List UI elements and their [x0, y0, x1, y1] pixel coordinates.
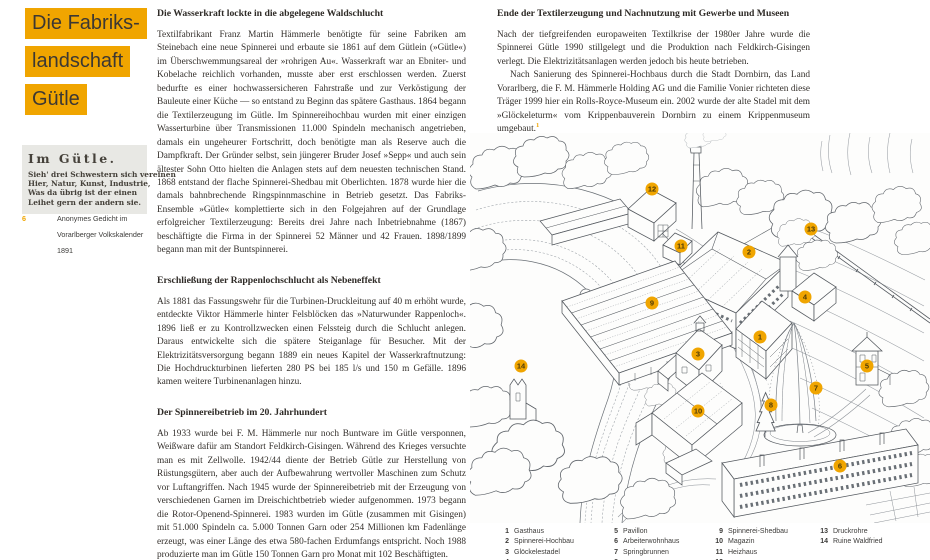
legend-item-number: 5 [606, 527, 618, 537]
poem-line: Was da übrig ist der einen [28, 188, 142, 197]
section-nachnutzung: Ende der Textilerzeugung und Nachnutzung… [497, 8, 810, 137]
legend-item: 6Arbeiterwohnhaus [606, 537, 679, 547]
legend-item-number: 10 [711, 537, 723, 547]
footnote-marker: 1 [536, 122, 539, 129]
section-spinnereibetrieb: Der Spinnereibetrieb im 20. Jahrhundert … [157, 407, 466, 560]
section-wasserkraft: Die Wasserkraft lockte in die abgelegene… [157, 8, 466, 258]
legend-item-label: Glöckelestadel [514, 549, 560, 556]
building-warehouse [540, 199, 632, 245]
page-title-line-3: Gütle [25, 84, 87, 115]
legend-item-label: Gasthaus [514, 528, 544, 535]
paragraph-text: Nach Sanierung des Spinnerei-Hochbaus du… [497, 70, 810, 134]
poem-title: Im Gütle. [28, 151, 142, 166]
map-marker-6: 6 [834, 460, 847, 473]
legend-item-number: 14 [816, 537, 828, 547]
poem-line: Sieh' drei Schwestern sich vereinen [28, 170, 142, 179]
building-pavillon [852, 332, 890, 385]
page-title-line-1: Die Fabriks- [25, 8, 147, 39]
poem-line: Hier, Natur, Kunst, Industrie, [28, 179, 142, 188]
legend-item: 13Druckrohre [816, 527, 883, 537]
map-marker-10: 10 [692, 405, 705, 418]
site-plan-illustration: 1213112491314578106 [470, 133, 930, 523]
legend-item-label: Heizhaus [728, 549, 757, 556]
map-marker-5: 5 [861, 360, 874, 373]
section-paragraph: Nach Sanierung des Spinnerei-Hochbaus du… [497, 69, 810, 136]
map-marker-12: 12 [646, 183, 659, 196]
poem-clipping: Im Gütle. Sieh' drei Schwestern sich ver… [22, 145, 147, 214]
page-title: Die Fabriks- landschaft Gütle [25, 8, 147, 122]
map-marker-4: 4 [799, 291, 812, 304]
map-marker-1: 1 [754, 331, 767, 344]
caption-number: 6 [22, 211, 26, 227]
page-title-line-2: landschaft [25, 46, 130, 77]
legend-item: 1Gasthaus [497, 527, 574, 537]
building-ruine-waldfried [510, 379, 536, 421]
legend-column-3: 9Spinnerei-Shedbau 10Magazin 11Heizhaus … [711, 527, 788, 560]
map-marker-3: 3 [692, 348, 705, 361]
legend-item: 10Magazin [711, 537, 788, 547]
map-marker-7: 7 [810, 382, 823, 395]
column-right: Ende der Textilerzeugung und Nachnutzung… [497, 8, 810, 137]
garden-plots [866, 487, 930, 523]
legend-column-4: 13Druckrohre 14Ruine Waldfried [816, 527, 883, 548]
column-middle: Die Wasserkraft lockte in die abgelegene… [157, 8, 466, 560]
section-paragraph: Textilfabrikant Franz Martin Hämmerle be… [157, 29, 466, 258]
legend-item-label: Magazin [728, 538, 754, 545]
legend-item: 5Pavillon [606, 527, 679, 537]
building-turbine-house [628, 189, 676, 241]
legend-item: 2Spinnerei-Hochbau [497, 537, 574, 547]
map-marker-9: 9 [646, 297, 659, 310]
section-paragraph: Als 1881 das Fassungswehr für die Turbin… [157, 296, 466, 390]
map-marker-11: 11 [675, 240, 688, 253]
section-paragraph: Nach der tiefgreifenden europaweiten Tex… [497, 29, 810, 69]
legend-item: 7Springbrunnen [606, 548, 679, 558]
legend-item-number: 13 [816, 527, 828, 537]
section-heading: Erschließung der Rappenlochschlucht als … [157, 275, 466, 287]
legend-item: 14Ruine Waldfried [816, 537, 883, 547]
map-marker-14: 14 [515, 360, 528, 373]
legend-item-number: 1 [497, 527, 509, 537]
legend-item-label: Springbrunnen [623, 549, 669, 556]
legend-item-label: Arbeiterwohnhaus [623, 538, 679, 545]
legend-column-2: 5Pavillon 6Arbeiterwohnhaus 7Springbrunn… [606, 527, 679, 560]
legend-item-label: Spinnerei-Hochbau [514, 538, 574, 545]
book-page: Die Fabriks- landschaft Gütle Im Gütle. … [0, 0, 930, 560]
legend-item-number: 9 [711, 527, 723, 537]
legend-column-1: 1Gasthaus 2Spinnerei-Hochbau 3Glöckelest… [497, 527, 574, 560]
legend-item-number: 6 [606, 537, 618, 547]
site-plan-drawing [470, 133, 930, 523]
legend-item-label: Druckrohre [833, 528, 868, 535]
legend-item-label: Spinnerei-Shedbau [728, 528, 788, 535]
legend-item-label: Pavillon [623, 528, 648, 535]
legend-item-label: Ruine Waldfried [833, 538, 883, 545]
legend-item-number: 2 [497, 537, 509, 547]
legend-item-number: 7 [606, 548, 618, 558]
legend-item-number: 3 [497, 548, 509, 558]
section-rappenloch: Erschließung der Rappenlochschlucht als … [157, 275, 466, 390]
legend-item: 3Glöckelestadel [497, 548, 574, 558]
legend-item-number: 11 [711, 548, 723, 558]
poem-line: Leihet gern der andern sie. [28, 198, 142, 207]
legend-item: 11Heizhaus [711, 548, 788, 558]
map-marker-8: 8 [765, 399, 778, 412]
section-heading: Ende der Textilerzeugung und Nachnutzung… [497, 8, 810, 20]
section-heading: Die Wasserkraft lockte in die abgelegene… [157, 8, 466, 20]
map-marker-2: 2 [743, 246, 756, 259]
map-legend: 1Gasthaus 2Spinnerei-Hochbau 3Glöckelest… [497, 524, 930, 560]
map-marker-13: 13 [805, 223, 818, 236]
section-paragraph: Ab 1933 wurde bei F. M. Hämmerle nur noc… [157, 428, 466, 560]
legend-item: 9Spinnerei-Shedbau [711, 527, 788, 537]
poem-caption: 6 Anonymes Gedicht im Vorarlberger Volks… [22, 211, 152, 259]
section-heading: Der Spinnereibetrieb im 20. Jahrhundert [157, 407, 466, 419]
caption-text: Anonymes Gedicht im Vorarlberger Volkska… [57, 211, 153, 259]
